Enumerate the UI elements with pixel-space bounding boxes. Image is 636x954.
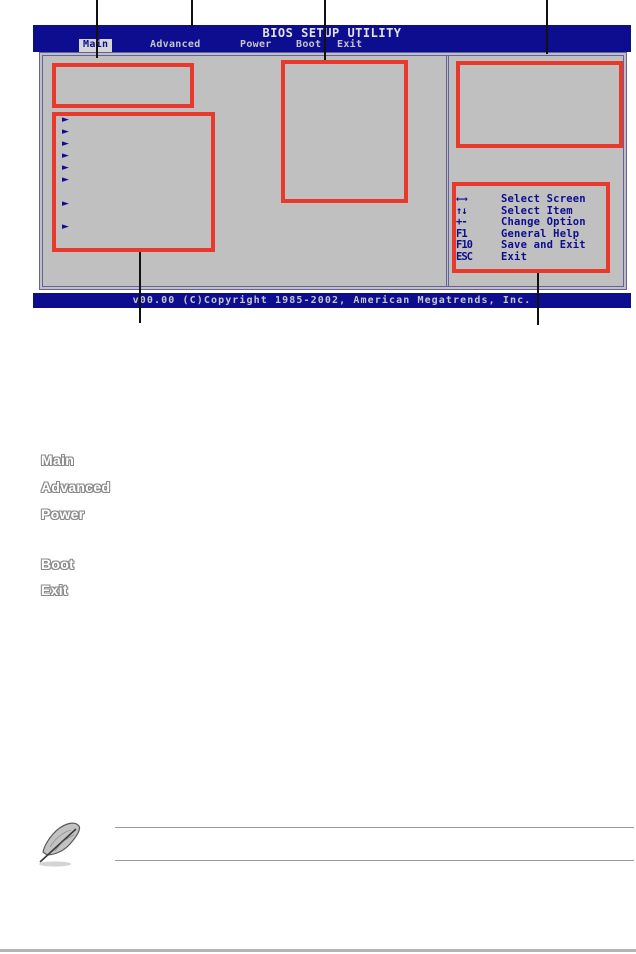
callout-box-configuration-fields [281, 60, 408, 203]
bios-titlebar: BIOS SETUP UTILITY Main Advanced Power B… [33, 25, 631, 52]
callout-box-general-help [456, 61, 623, 148]
bios-tab-power[interactable]: Power [240, 39, 272, 52]
callout-box-submenu-items [52, 112, 215, 252]
note-icon [33, 818, 85, 870]
figure-label-power: Power [41, 506, 85, 522]
figure-label-boot: Boot [41, 556, 74, 572]
callout-box-navigation-keys [452, 182, 610, 273]
bios-tab-advanced[interactable]: Advanced [150, 39, 201, 52]
leader-line-menu-bar [191, 0, 193, 27]
figure-label-advanced: Advanced [41, 479, 110, 495]
bios-tab-boot[interactable]: Boot [296, 39, 321, 52]
leader-line-submenu-items [139, 252, 141, 323]
bios-tab-exit[interactable]: Exit [337, 39, 362, 52]
note-rule-top [115, 827, 634, 828]
bios-copyright-bar: v00.00 (C)Copyright 1985-2002, American … [33, 293, 631, 308]
figure-label-main: Main [41, 452, 74, 468]
bios-panel-divider [446, 56, 449, 286]
leader-line-navigation-keys [537, 273, 539, 325]
bios-copyright-text: v00.00 (C)Copyright 1985-2002, American … [133, 295, 532, 306]
leader-line-menu-field [96, 0, 98, 58]
leader-line-configuration-fields [324, 0, 326, 60]
figure-label-exit: Exit [41, 582, 68, 598]
bios-title-text: BIOS SETUP UTILITY [33, 26, 631, 40]
callout-box-menu-field [52, 63, 194, 108]
note-rule-bottom [115, 860, 634, 861]
page-footer-rule [0, 949, 636, 952]
leader-line-general-help [546, 0, 548, 54]
manual-page: BIOS SETUP UTILITY Main Advanced Power B… [0, 0, 636, 954]
